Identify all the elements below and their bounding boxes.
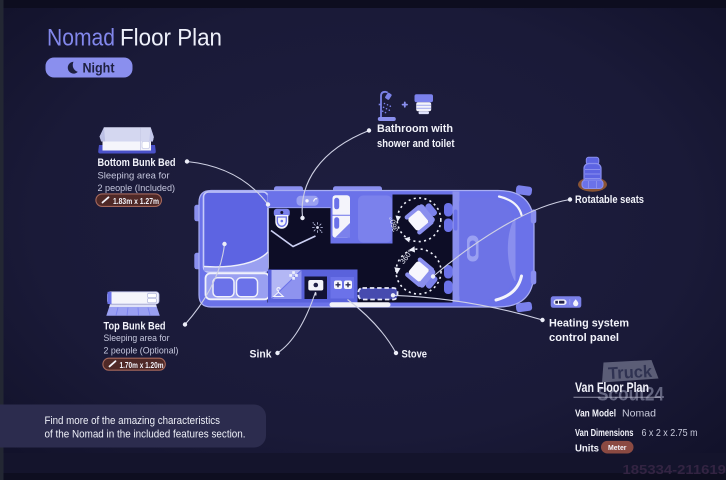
svg-text:Van Floor Plan: Van Floor Plan bbox=[575, 379, 649, 395]
svg-text:Sink: Sink bbox=[250, 348, 273, 360]
svg-text:Bottom Bunk Bed: Bottom Bunk Bed bbox=[98, 157, 176, 169]
svg-text:6 x 2 x 2.75 m: 6 x 2 x 2.75 m bbox=[642, 427, 698, 439]
svg-text:1.70m x 1.20m: 1.70m x 1.20m bbox=[120, 361, 164, 370]
svg-text:Heating system: Heating system bbox=[549, 317, 629, 329]
svg-text:Find more of the amazing chara: Find more of the amazing characteristics bbox=[45, 415, 221, 427]
svg-text:Stove: Stove bbox=[402, 349, 428, 361]
svg-text:Bathroom with: Bathroom with bbox=[377, 123, 453, 135]
svg-text:Top Bunk Bed: Top Bunk Bed bbox=[104, 321, 166, 333]
svg-text:Sleeping area for: Sleeping area for bbox=[98, 171, 170, 182]
svg-text:Nomad: Nomad bbox=[622, 408, 656, 420]
svg-text:of the Nomad in the included f: of the Nomad in the included features se… bbox=[45, 428, 246, 440]
svg-text:Nomad: Nomad bbox=[47, 25, 115, 52]
svg-text:shower and toilet: shower and toilet bbox=[377, 138, 455, 150]
svg-text:1.83m x 1.27m: 1.83m x 1.27m bbox=[113, 197, 159, 206]
svg-text:Units: Units bbox=[575, 443, 599, 455]
svg-text:Van Model: Van Model bbox=[575, 408, 616, 420]
svg-text:control panel: control panel bbox=[549, 332, 619, 344]
svg-text:185334-21161992: 185334-21161992 bbox=[623, 463, 726, 477]
svg-text:Night: Night bbox=[83, 60, 115, 75]
svg-text:Sleeping area for: Sleeping area for bbox=[104, 333, 170, 344]
svg-text:Meter: Meter bbox=[608, 443, 627, 452]
svg-text:2 people (Optional): 2 people (Optional) bbox=[104, 345, 179, 356]
svg-text:Rotatable seats: Rotatable seats bbox=[575, 194, 644, 206]
svg-text:2 people (Included): 2 people (Included) bbox=[98, 183, 176, 194]
svg-text:Van Dimensions: Van Dimensions bbox=[575, 427, 634, 439]
svg-text:Floor Plan: Floor Plan bbox=[120, 25, 222, 52]
